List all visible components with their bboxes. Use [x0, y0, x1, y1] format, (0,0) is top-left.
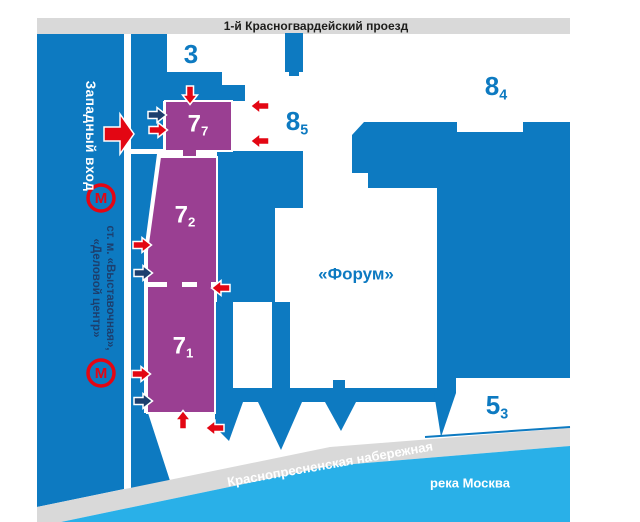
pavilion-7-7-label: 77: [188, 112, 209, 137]
pavilion-8-4-sub: 4: [499, 87, 507, 103]
forum-left-leg-west: [215, 302, 233, 390]
top-street-label: 1-й Красногвардейский проезд: [224, 20, 408, 32]
south-bump-1: [215, 402, 243, 441]
metro-station-label: ст. м. «Выставочная», «Деловой центр»: [88, 225, 116, 350]
pavilion-8-5-number: 8: [286, 106, 300, 136]
forum-pavilion-label: «Форум»: [318, 266, 394, 283]
pavilion-7-divider-bridge-2: [197, 281, 211, 288]
metro-icon-letter: М: [95, 190, 108, 207]
metro-station-line2: «Деловой центр»: [88, 225, 102, 350]
south-bar-tab: [333, 380, 345, 388]
small-north-building: [285, 33, 303, 76]
pavilion-3-number: 3: [184, 39, 198, 69]
pavilion-8-5-label: 85: [286, 108, 308, 138]
forum-left-building: [217, 151, 303, 302]
expocentre-map: М М 1-й Красногвардейский проезд 3 77 72…: [0, 0, 640, 522]
pavilion-8-4-label: 84: [485, 73, 507, 103]
south-bump-3: [325, 402, 356, 431]
pavilion-7-2-label: 72: [175, 203, 196, 228]
south-bump-2: [258, 402, 302, 450]
south-bump-4: [434, 393, 456, 437]
pavilion-7-7-number: 7: [188, 110, 201, 137]
red-left-arrow-icon: [251, 99, 270, 114]
pavilion-5-3-number: 5: [486, 390, 500, 420]
south-bar-building: [215, 388, 437, 402]
pavilion-5-3-sub: 3: [500, 406, 508, 422]
river-label: река Москва: [430, 477, 510, 490]
pavilion-7-7-sub: 7: [201, 123, 208, 138]
east-building: [352, 122, 570, 393]
pavilion-8-5-sub: 5: [300, 122, 308, 138]
pavilion-5-3-label: 53: [486, 392, 508, 422]
pavilion-8-4-number: 8: [485, 71, 499, 101]
pavilion-7-1-label: 71: [173, 334, 194, 359]
pavilion-7-1-sub: 1: [186, 345, 193, 360]
red-left-arrow-icon: [251, 134, 270, 149]
pavilion-3-label: 3: [184, 41, 198, 71]
pavilion-7-2-sub: 2: [188, 214, 195, 229]
pavilion-7-divider-bridge-1: [167, 281, 182, 288]
pavilion-7-2-number: 7: [175, 201, 188, 228]
metro-icon-letter: М: [95, 365, 108, 382]
metro-station-line1: ст. м. «Выставочная»,: [102, 225, 116, 350]
forum-left-leg-east: [272, 302, 290, 390]
pavilion-7-1-number: 7: [173, 332, 186, 359]
west-entrance-label: Западный вход: [83, 81, 97, 192]
